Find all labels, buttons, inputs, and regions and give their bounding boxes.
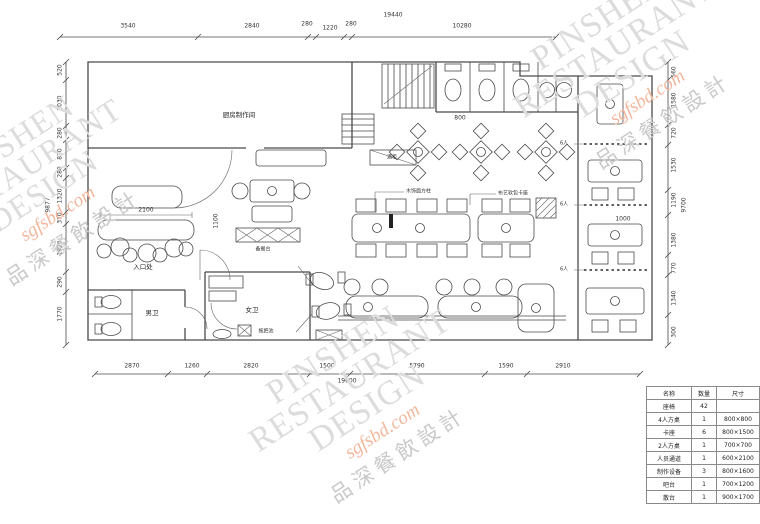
mens-wc-fixtures — [88, 290, 231, 340]
wash-basin — [213, 330, 231, 339]
room-label-mens-wc: 男卫 — [146, 307, 159, 317]
dim-label: 1260 — [184, 363, 199, 370]
legend-cell: 1 — [692, 491, 717, 504]
dim-label-left-total: 9877 — [45, 197, 52, 212]
legend-row: 制作设备 3 800×1600 — [647, 465, 760, 478]
dim-label: 1590 — [498, 363, 513, 370]
inline-dim: 1000 — [615, 216, 630, 223]
dim-label: 820 — [57, 148, 64, 159]
legend-row: 人员通道 1 600×2100 — [647, 452, 760, 465]
legend-cell: 卡座 — [647, 426, 692, 439]
booth-seating — [574, 84, 650, 332]
dim-label: 2820 — [243, 363, 258, 370]
door-swing — [174, 150, 232, 208]
legend-cell: 1 — [692, 478, 717, 491]
dim-label: 720 — [671, 127, 678, 138]
note-booth: 布艺软包卡座 — [498, 190, 528, 197]
dim-label: 280 — [345, 21, 356, 28]
legend-cell: 2人方桌 — [647, 439, 692, 452]
room-label-entrance: 入口处 — [133, 261, 153, 271]
legend-cell: 800×1600 — [717, 465, 760, 478]
legend-row: 4人方桌 1 800×800 — [647, 413, 760, 426]
service-counter — [256, 150, 326, 166]
dim-label: 1340 — [671, 290, 678, 305]
staircase — [342, 64, 434, 144]
inline-dim: 800 — [454, 115, 465, 122]
legend-cell: 900×1700 — [717, 491, 760, 504]
legend-table: 名称 数量 尺寸 座椅 42 4人方桌 1 800×800 卡座 6 800×1… — [646, 386, 760, 504]
dim-label: 10280 — [452, 23, 471, 30]
dim-label: 280 — [57, 166, 64, 177]
dim-label-bottom-total: 19600 — [337, 378, 356, 385]
dimension-lines — [57, 34, 671, 377]
room-label-kitchen: 厨房制作间 — [223, 109, 256, 119]
legend-cell: 1 — [692, 413, 717, 426]
dim-label: 770 — [671, 262, 678, 273]
dim-label: 1580 — [671, 92, 678, 107]
interior-walls — [88, 62, 578, 340]
legend-row: 吧台 1 700×1200 — [647, 478, 760, 491]
dim-label: 5790 — [409, 363, 424, 370]
dim-label: 280 — [301, 21, 312, 28]
legend-cell: 散台 — [647, 491, 692, 504]
legend-cell — [717, 400, 760, 413]
legend-cell: 3 — [692, 465, 717, 478]
dim-label: 1380 — [671, 232, 678, 247]
label-wine-cabinet: 酒柜 — [387, 154, 397, 161]
dim-label: 280 — [57, 127, 64, 138]
legend-header: 数量 — [692, 387, 717, 400]
dim-label: 290 — [57, 276, 64, 287]
legend-cell: 700×700 — [717, 439, 760, 452]
wash-basin — [557, 83, 572, 98]
legend-cell: 1 — [692, 452, 717, 465]
bar-counter-area — [296, 266, 566, 340]
wc-stalls — [445, 62, 572, 112]
note-booth-seats: 6人 — [560, 140, 568, 147]
dim-label: 2870 — [124, 363, 139, 370]
entrance-tables — [111, 238, 230, 280]
legend-cell: 4人方桌 — [647, 413, 692, 426]
note-booth-seats: 6人 — [560, 266, 568, 273]
legend-header: 名称 — [647, 387, 692, 400]
wash-basin — [540, 83, 555, 98]
legend-row: 2人方桌 1 700×700 — [647, 439, 760, 452]
legend-cell: 42 — [692, 400, 717, 413]
floorplan-canvas: PINSHEN RESTAURANT DESIGN sgfsbd.com 品深餐… — [0, 0, 760, 524]
dim-label: 560 — [671, 66, 678, 77]
dim-label: 1220 — [322, 25, 337, 32]
legend-row: 卡座 6 800×1500 — [647, 426, 760, 439]
dim-label: 520 — [57, 64, 64, 75]
structural-column — [389, 214, 393, 228]
diamond-table-cluster — [452, 123, 510, 181]
legend-cell: 制作设备 — [647, 465, 692, 478]
legend-row: 散台 1 900×1700 — [647, 491, 760, 504]
legend-cell: 800×800 — [717, 413, 760, 426]
dim-label: 1190 — [671, 192, 678, 207]
dim-label: 1320 — [57, 188, 64, 203]
dim-label: 3540 — [120, 23, 135, 30]
long-tables — [352, 192, 556, 257]
inline-dim: 2100 — [138, 207, 153, 214]
inline-dim: 1100 — [213, 213, 220, 228]
dim-label: 2840 — [244, 23, 259, 30]
legend-cell: 吧台 — [647, 478, 692, 491]
label-mop-sink: 拖把池 — [258, 328, 273, 335]
legend-cell: 座椅 — [647, 400, 692, 413]
dim-label: 2910 — [555, 363, 570, 370]
legend-cell: 人员通道 — [647, 452, 692, 465]
legend-row: 座椅 42 — [647, 400, 760, 413]
dim-label: 300 — [671, 326, 678, 337]
dim-label-top-total: 19440 — [383, 12, 402, 19]
legend-cell: 1 — [692, 439, 717, 452]
legend-cell: 600×2100 — [717, 452, 760, 465]
note-booth-seats: 6人 — [560, 201, 568, 208]
diamond-table-cluster — [517, 123, 575, 181]
note-column: 木饰面方柱 — [406, 188, 431, 195]
legend-cell: 6 — [692, 426, 717, 439]
diamond-table-cluster — [389, 123, 447, 181]
legend-header-row: 名称 数量 尺寸 — [647, 387, 760, 400]
dim-label: 2030 — [57, 95, 64, 110]
dim-label: 1530 — [671, 157, 678, 172]
dim-label: 1920 — [57, 240, 64, 255]
dim-label: 1770 — [57, 306, 64, 321]
label-prep-counter: 备餐台 — [255, 246, 270, 253]
dim-label: 370 — [57, 212, 64, 223]
dim-label: 1500 — [319, 363, 334, 370]
dim-label-right-total: 9700 — [681, 197, 688, 212]
legend-cell: 700×1200 — [717, 478, 760, 491]
room-label-womens-wc: 女卫 — [246, 304, 259, 314]
legend-cell: 800×1500 — [717, 426, 760, 439]
legend-header: 尺寸 — [717, 387, 760, 400]
